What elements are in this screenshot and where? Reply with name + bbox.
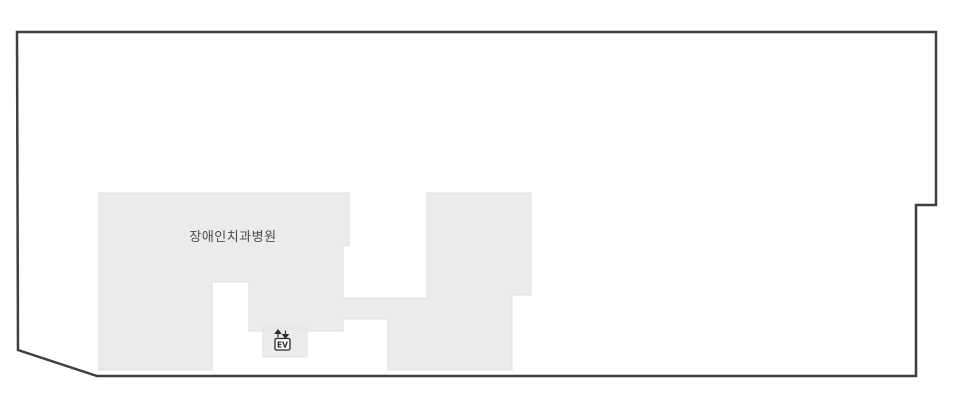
elevator-label: EV bbox=[277, 341, 288, 350]
hospital-label: 장애인치과병원 bbox=[189, 230, 276, 245]
floor-map: 장애인치과병원 EV bbox=[0, 0, 954, 411]
floorplan-svg: 장애인치과병원 EV bbox=[0, 0, 954, 411]
